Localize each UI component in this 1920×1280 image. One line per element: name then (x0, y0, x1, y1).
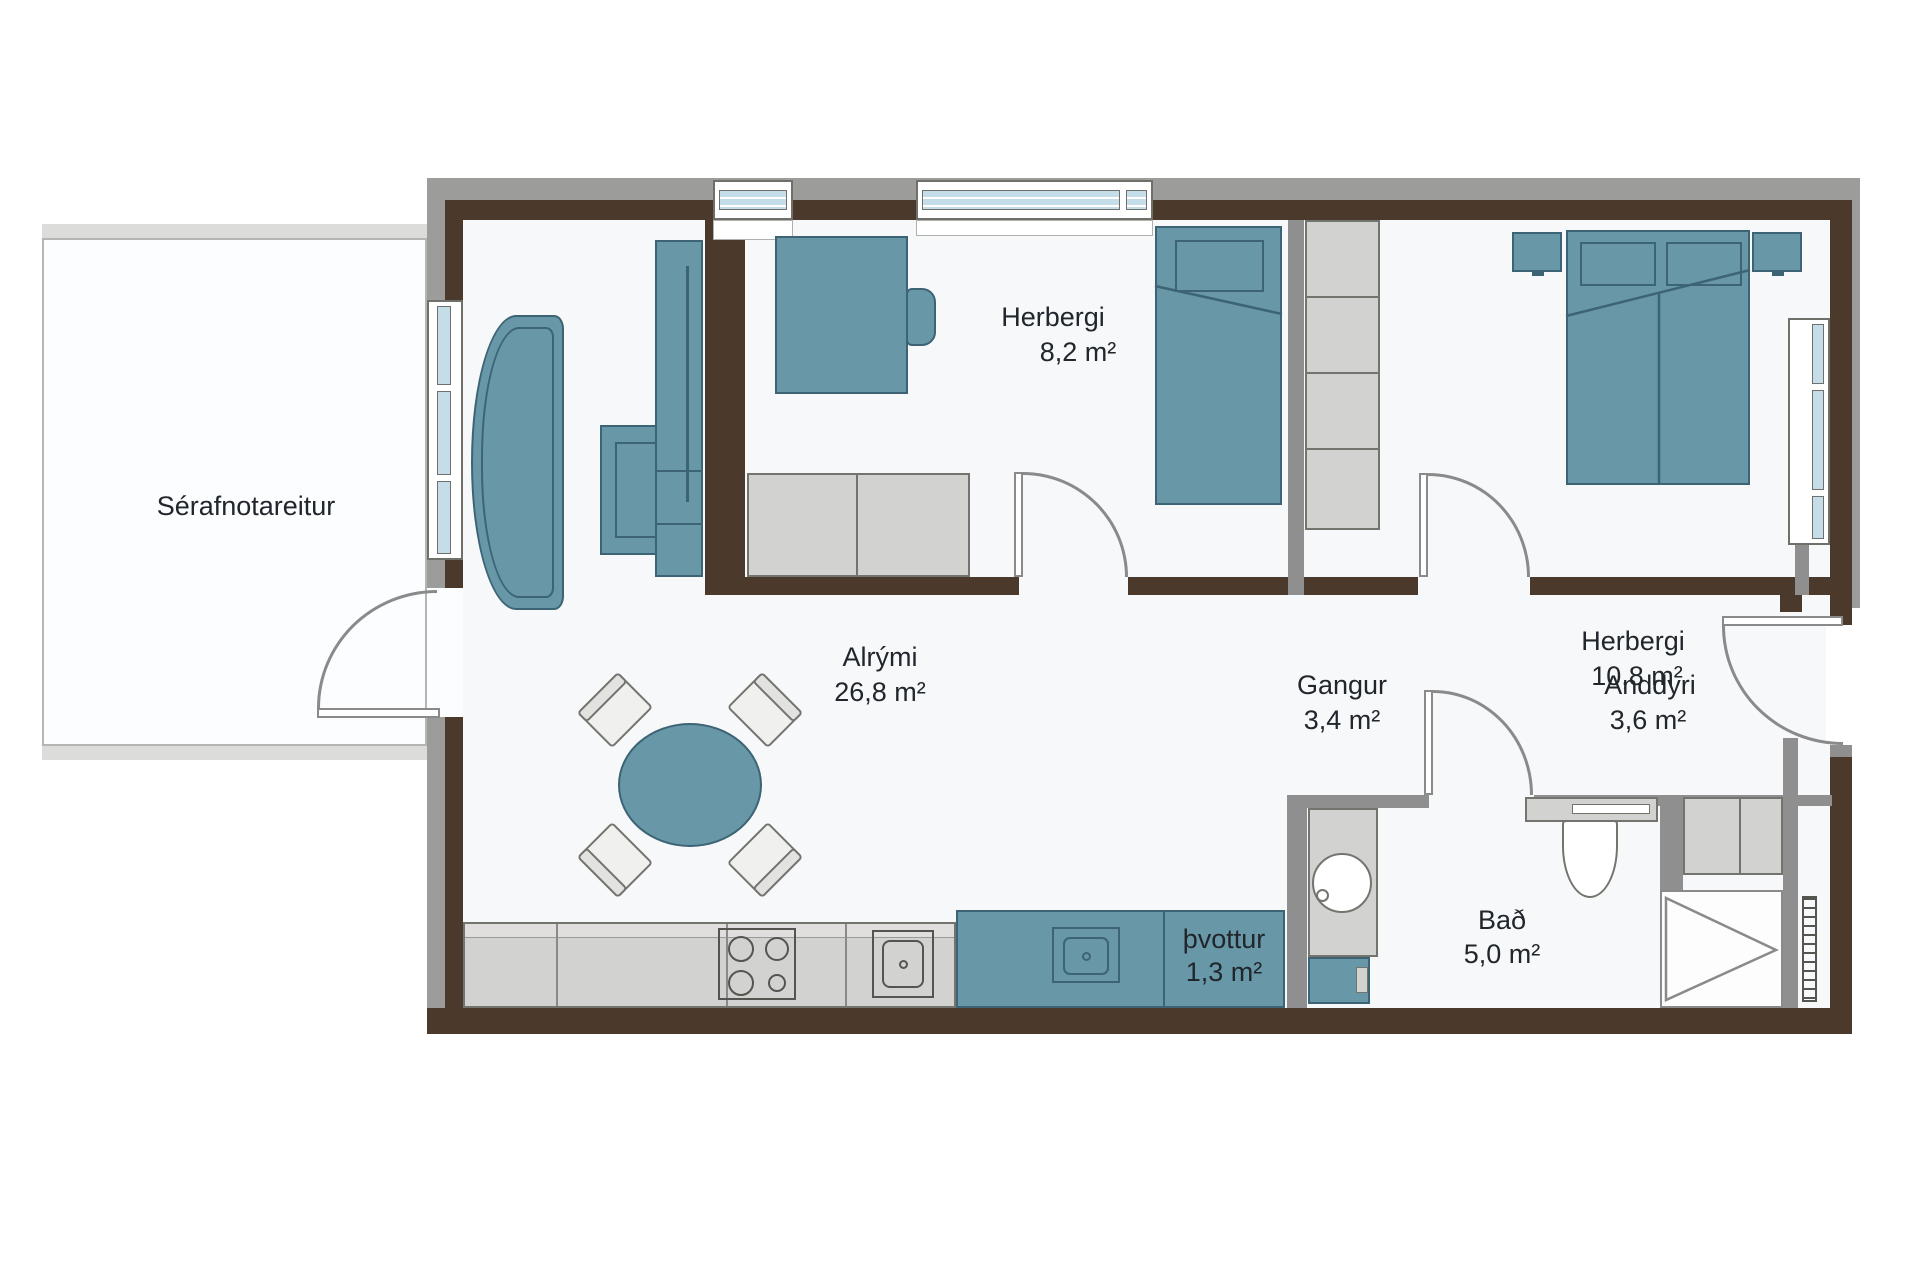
label-gangur-area: 3,4 m² (1242, 706, 1442, 734)
window-bedroom1-glass-right (1126, 190, 1147, 210)
window-bedroom2-glass-3 (1812, 496, 1824, 539)
label-anddyri-area: 3,6 m² (1548, 706, 1748, 734)
label-herbergi2-name: Herbergi (1533, 627, 1733, 655)
wall-left-inner-upper (445, 200, 463, 300)
desk-icon (775, 236, 908, 394)
nightstand-foot (1532, 271, 1544, 276)
label-anddyri-name: Anddyri (1550, 671, 1750, 699)
label-thvottur-area: 1,3 m² (1124, 958, 1324, 986)
entry-door-leaf (1722, 616, 1843, 626)
wardrobe-column-icon-4 (1305, 448, 1380, 530)
wall-left-inner-lower (445, 717, 463, 1008)
sink-drain (899, 960, 908, 969)
window-bedroom2-glass-1 (1812, 324, 1824, 384)
bedroom1-door-leaf (1014, 472, 1023, 577)
sideboard-shelf-line-2 (657, 523, 701, 525)
label-alrymi-name: Alrými (770, 643, 990, 671)
pillow-icon (1175, 240, 1264, 292)
burner-2 (765, 937, 789, 961)
sofa-inner-line (481, 327, 554, 598)
tv-sideboard-icon (655, 240, 703, 577)
label-herbergi1-area: 8,2 m² (978, 338, 1178, 366)
wall-shower-strip (1783, 738, 1798, 1008)
patio-door-leaf (317, 708, 440, 718)
window-living-left-glass-2 (437, 391, 451, 475)
wall-toilet-column (1660, 795, 1683, 890)
wall-left-inner-mid (445, 560, 463, 588)
sideboard-seam-line (686, 266, 689, 502)
burner-3 (728, 970, 754, 996)
wall-bedroom1-south-left (745, 577, 1019, 595)
toilet-cistern-slot (1572, 804, 1650, 814)
washer-detail (1356, 967, 1368, 993)
desk-chair-icon (906, 288, 936, 346)
floor-plan: Sérafnotareitur Alrými 26,8 m² Herbergi … (0, 0, 1920, 1280)
entry-closet-icon-a (1683, 797, 1741, 875)
label-serafnotareitur: Sérafnotareitur (96, 492, 396, 520)
label-gangur-name: Gangur (1242, 671, 1442, 699)
wall-bath-top (1287, 795, 1429, 808)
wall-stub-anddyri (1780, 595, 1802, 612)
label-bad-area: 5,0 m² (1402, 940, 1602, 968)
kitchen-sink-icon (872, 930, 934, 998)
wall-left-outer-lower (427, 717, 445, 1008)
pillow-icon-right (1666, 242, 1742, 286)
wall-livingroom-bedroom1 (705, 220, 745, 595)
nightstand-icon-left (1512, 232, 1562, 272)
bedroom2-door-leaf (1419, 473, 1428, 577)
window-bedroom1-glass-left (922, 190, 1120, 210)
wall-bedroom1-south-right (1128, 577, 1418, 595)
stove-icon (718, 928, 796, 1000)
curved-sofa-icon (471, 315, 564, 610)
wall-left-outer-upper (427, 178, 445, 300)
label-bad-name: Bað (1402, 906, 1602, 934)
nightstand-icon-right (1752, 232, 1802, 272)
counter-seam-1 (556, 924, 558, 1006)
entry-door-stop (1830, 745, 1852, 757)
window-living-left-glass-3 (437, 481, 451, 554)
laundry-sink-drain (1082, 952, 1091, 961)
nightstand-foot (1772, 271, 1784, 276)
bedroom2-window-sill-strip (1795, 545, 1809, 595)
corner-cabinet-icon-b (856, 473, 970, 577)
patio-top-band (42, 224, 427, 240)
wall-right-outer (1852, 178, 1860, 608)
double-bed-icon (1566, 230, 1750, 485)
coffee-table-inner (615, 442, 657, 538)
corner-cabinet-icon-a (747, 473, 858, 577)
sideboard-shelf-line-1 (657, 470, 701, 472)
wardrobe-column-icon-3 (1305, 372, 1380, 450)
window-living-left-glass-1 (437, 306, 451, 385)
laundry-sink-icon (1052, 927, 1120, 983)
patio-bottom-band (42, 744, 427, 760)
wall-bedroom1-closet (1288, 220, 1304, 595)
wardrobe-column-icon-2 (1305, 296, 1380, 374)
wardrobe-column-icon-1 (1305, 220, 1380, 298)
window-living-top-glass (719, 190, 787, 210)
vanity-faucet-dot (1316, 889, 1329, 902)
pillow-icon-left (1580, 242, 1656, 286)
label-alrymi-area: 26,8 m² (770, 678, 990, 706)
window-bedroom1-sill (916, 220, 1153, 236)
counter-seam-3 (845, 924, 847, 1006)
window-bedroom2-glass-2 (1812, 390, 1824, 490)
label-herbergi1-name: Herbergi (953, 303, 1153, 331)
entry-closet-icon-b (1739, 797, 1783, 875)
vanity-basin-icon (1312, 853, 1372, 913)
burner-1 (728, 936, 754, 962)
label-thvottur-name: þvottur (1124, 925, 1324, 953)
radiator-icon (1802, 896, 1817, 1002)
round-dining-table-icon (618, 723, 762, 847)
shower-icon (1660, 890, 1783, 1008)
wall-left-outer-mid (427, 560, 445, 588)
wall-bottom (427, 1008, 1852, 1034)
burner-4 (768, 974, 786, 992)
